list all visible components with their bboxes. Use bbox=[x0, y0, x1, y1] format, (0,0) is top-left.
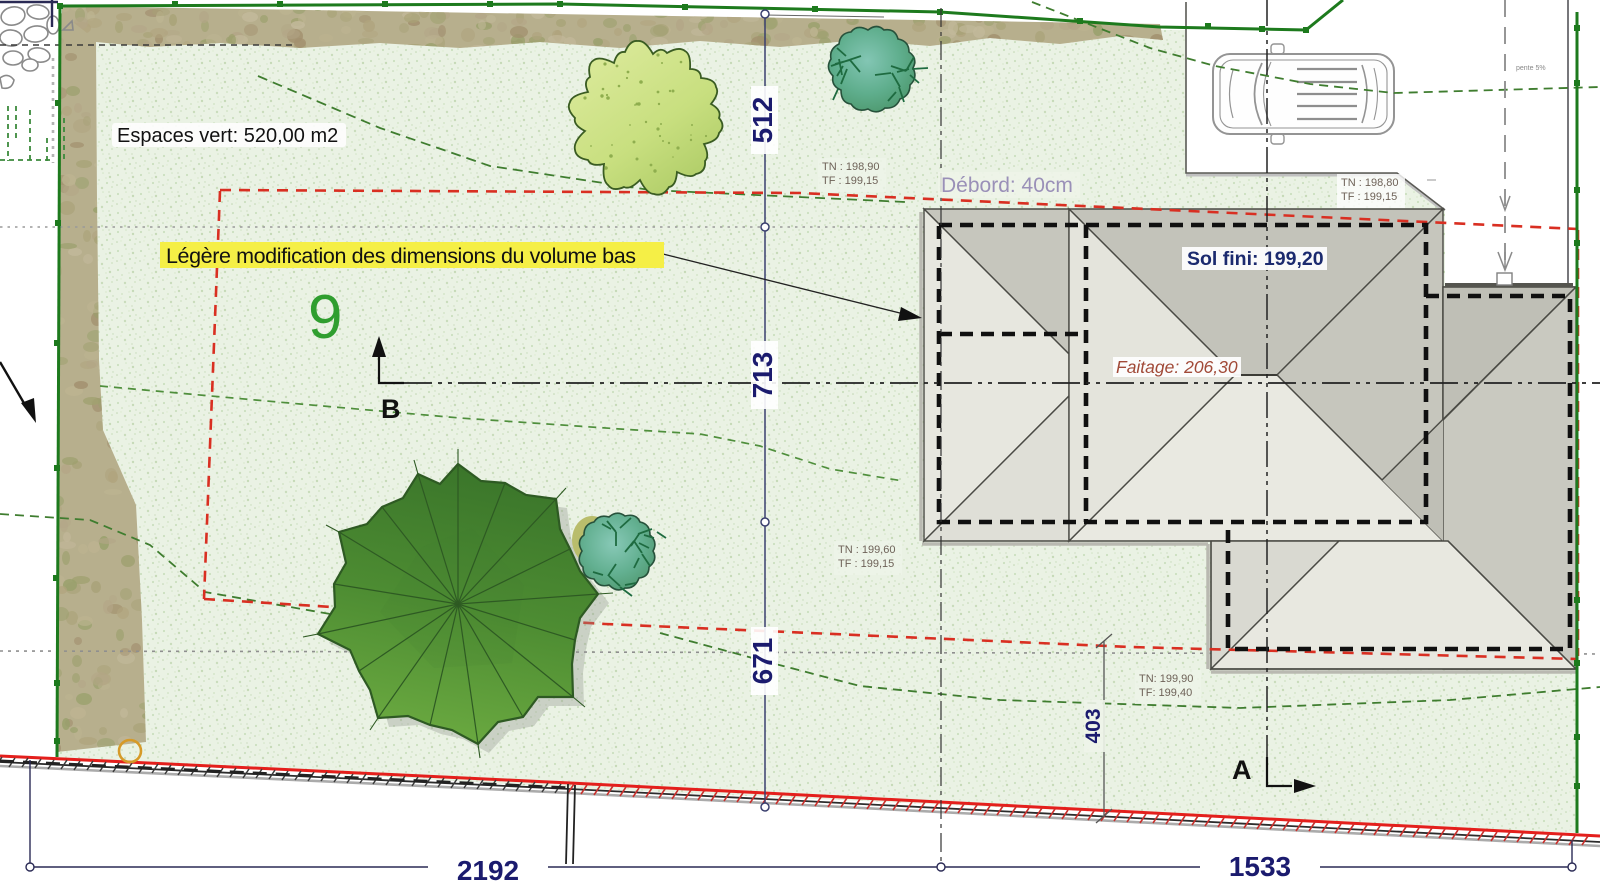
svg-text:B: B bbox=[381, 394, 401, 424]
svg-text:TF : 199,15: TF : 199,15 bbox=[822, 175, 878, 187]
svg-text:Faitage: 206,30: Faitage: 206,30 bbox=[1116, 357, 1238, 377]
svg-text:1533: 1533 bbox=[1229, 851, 1291, 881]
svg-text:TF : 199,15: TF : 199,15 bbox=[838, 558, 894, 570]
svg-text:Débord: 40cm: Débord: 40cm bbox=[941, 174, 1073, 197]
svg-text:A: A bbox=[1232, 755, 1252, 785]
svg-text:713: 713 bbox=[747, 352, 778, 399]
svg-text:TN : 198,90: TN : 198,90 bbox=[822, 161, 879, 173]
svg-text:pente 5%: pente 5% bbox=[1516, 65, 1546, 72]
svg-text:TF : 199,15: TF : 199,15 bbox=[1341, 191, 1397, 203]
svg-text:Légère modification des dimens: Légère modification des dimensions du vo… bbox=[166, 244, 636, 268]
svg-text:TN : 199,60: TN : 199,60 bbox=[838, 544, 895, 556]
svg-text:TF: 199,40: TF: 199,40 bbox=[1139, 687, 1192, 699]
svg-text:TN: 199,90: TN: 199,90 bbox=[1139, 673, 1193, 685]
svg-text:Espaces vert: 520,00 m2: Espaces vert: 520,00 m2 bbox=[117, 125, 338, 147]
svg-text:Sol fini: 199,20: Sol fini: 199,20 bbox=[1187, 248, 1324, 270]
svg-text:671: 671 bbox=[747, 638, 778, 685]
svg-text:512: 512 bbox=[747, 97, 778, 144]
svg-text:403: 403 bbox=[1082, 708, 1105, 743]
svg-text:2192: 2192 bbox=[457, 855, 519, 881]
svg-text:TN : 198,80: TN : 198,80 bbox=[1341, 177, 1398, 189]
svg-text:9: 9 bbox=[308, 283, 342, 352]
